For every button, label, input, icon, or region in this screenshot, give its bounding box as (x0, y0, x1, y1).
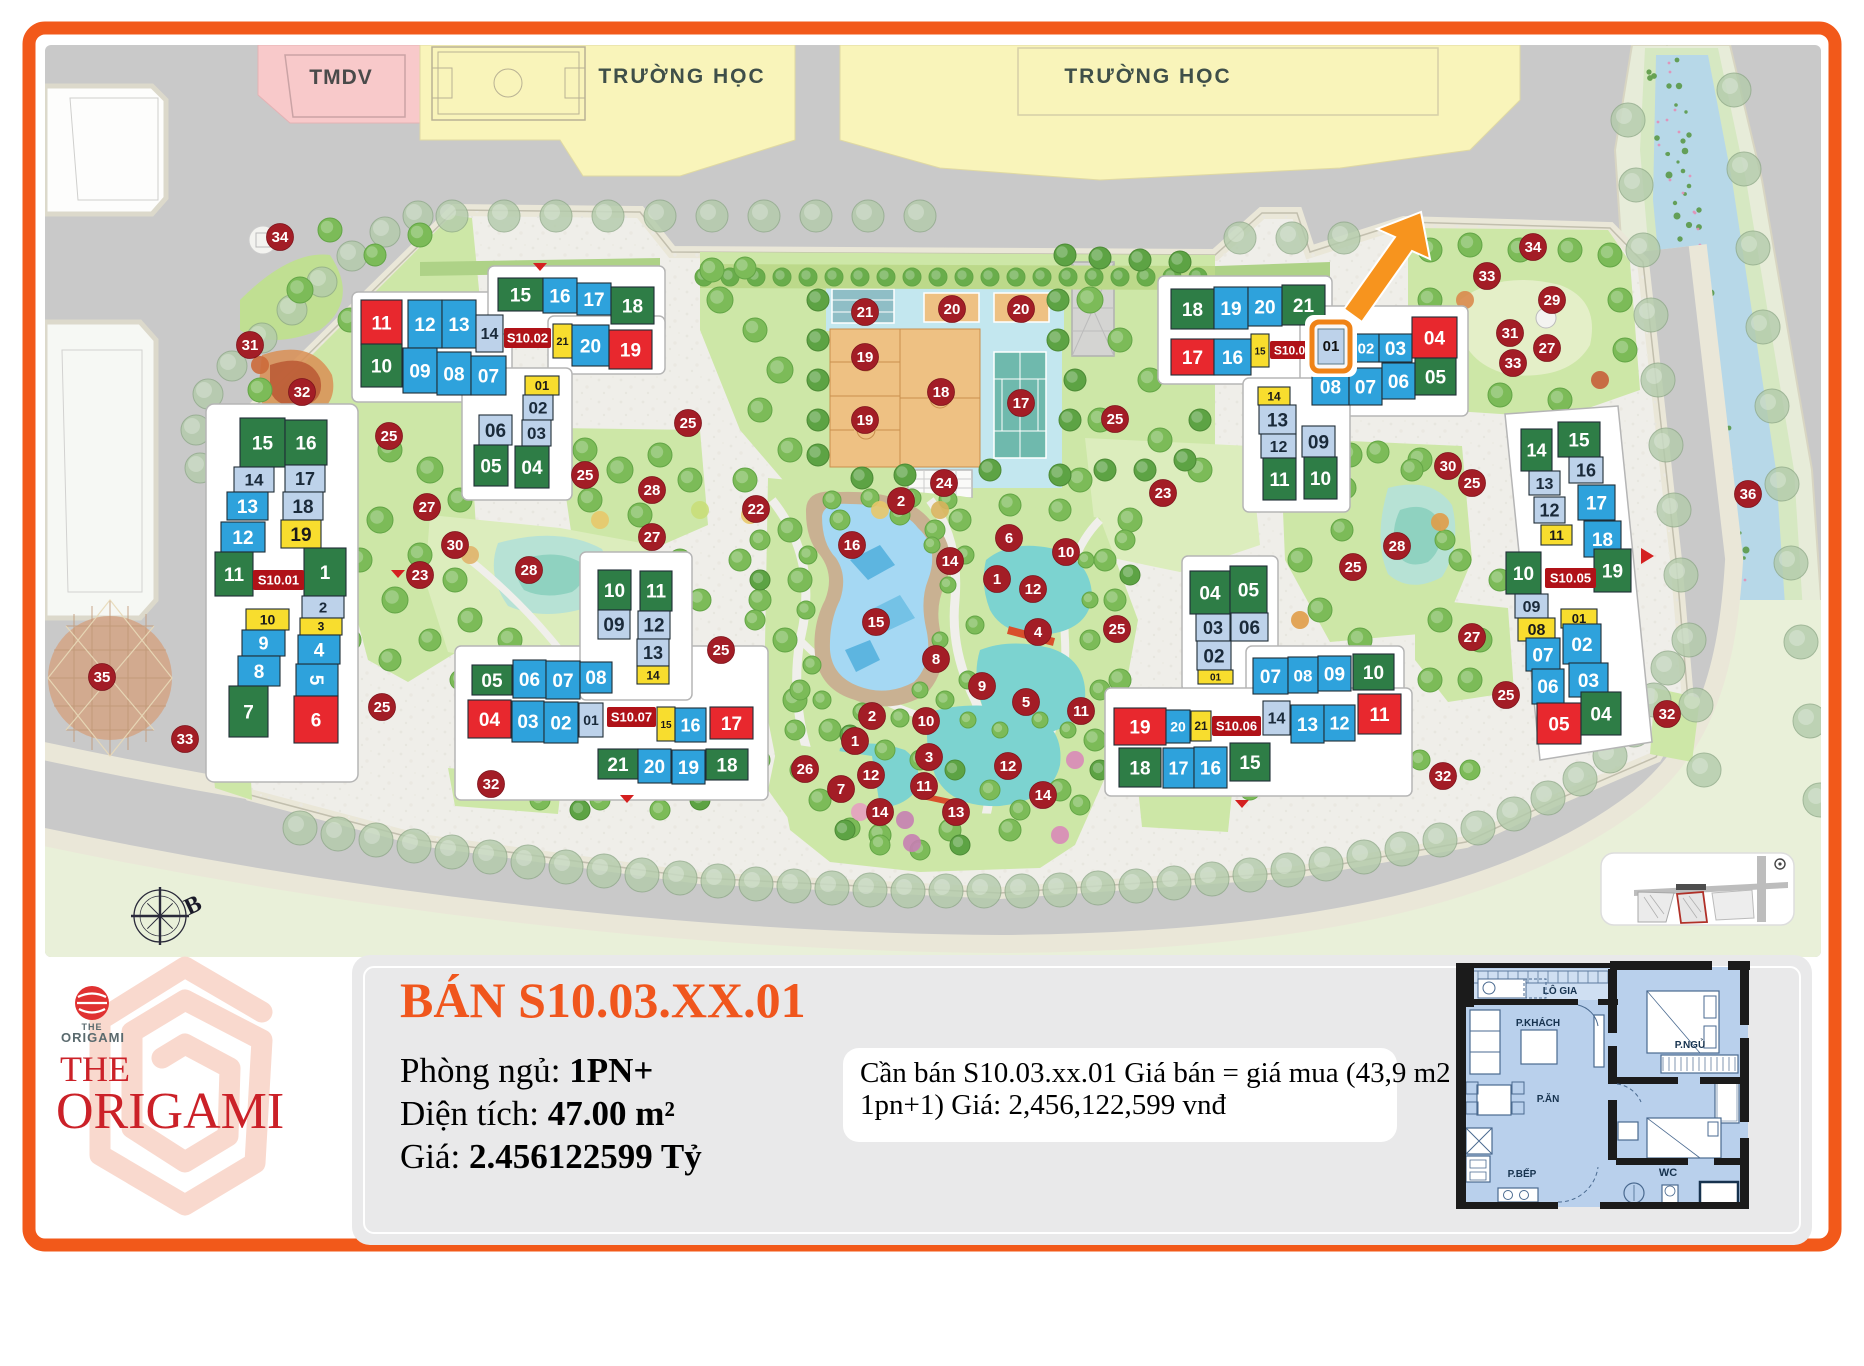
svg-text:11: 11 (1549, 527, 1564, 543)
svg-text:20: 20 (580, 336, 601, 357)
svg-text:17: 17 (295, 469, 315, 489)
svg-text:06: 06 (519, 670, 540, 691)
svg-text:15: 15 (660, 720, 672, 731)
svg-text:S10.06: S10.06 (1216, 719, 1257, 734)
svg-text:19: 19 (857, 349, 874, 366)
svg-text:06: 06 (485, 421, 506, 442)
svg-text:03: 03 (517, 712, 538, 733)
svg-text:26: 26 (797, 761, 814, 778)
svg-text:12: 12 (1329, 714, 1349, 734)
svg-text:16: 16 (844, 537, 861, 554)
svg-text:27: 27 (419, 499, 436, 516)
svg-text:16: 16 (1222, 348, 1243, 369)
svg-text:06: 06 (1239, 618, 1260, 639)
svg-text:BÁN S10.03.XX.01: BÁN S10.03.XX.01 (400, 972, 806, 1028)
svg-text:19: 19 (1220, 299, 1241, 320)
svg-text:16: 16 (549, 286, 570, 307)
svg-text:02: 02 (1358, 340, 1375, 357)
svg-text:31: 31 (1502, 325, 1519, 342)
svg-text:20: 20 (1170, 719, 1186, 735)
svg-text:6: 6 (1005, 530, 1013, 547)
svg-text:28: 28 (644, 482, 661, 499)
svg-text:08: 08 (443, 364, 464, 385)
svg-text:32: 32 (483, 776, 500, 793)
svg-text:10: 10 (918, 713, 935, 730)
svg-text:4: 4 (1034, 624, 1043, 641)
svg-text:WC: WC (1659, 1167, 1677, 1179)
svg-text:03: 03 (527, 424, 546, 443)
svg-text:35: 35 (94, 669, 111, 686)
svg-text:15: 15 (510, 285, 532, 306)
svg-text:11: 11 (1073, 703, 1089, 720)
svg-text:8: 8 (254, 662, 265, 683)
svg-text:17: 17 (721, 714, 742, 735)
svg-text:01: 01 (583, 712, 599, 728)
svg-text:11: 11 (646, 582, 667, 603)
svg-text:07: 07 (1355, 377, 1376, 398)
svg-text:21: 21 (556, 336, 568, 348)
svg-text:08: 08 (1320, 377, 1341, 398)
svg-text:12: 12 (863, 767, 880, 784)
svg-text:18: 18 (1182, 300, 1203, 321)
svg-text:17: 17 (1586, 493, 1607, 514)
svg-text:Diện tích: 47.00 m²: Diện tích: 47.00 m² (400, 1094, 675, 1133)
svg-text:02: 02 (529, 399, 548, 418)
svg-text:S10.02: S10.02 (507, 331, 548, 346)
svg-text:10: 10 (604, 581, 625, 602)
svg-text:13: 13 (948, 804, 965, 821)
svg-text:1: 1 (993, 571, 1001, 588)
svg-text:11: 11 (1369, 705, 1390, 726)
svg-text:15: 15 (1254, 346, 1266, 357)
svg-text:03: 03 (1578, 671, 1599, 692)
svg-text:12: 12 (1025, 581, 1042, 598)
svg-text:01: 01 (1323, 338, 1340, 355)
svg-text:29: 29 (1544, 292, 1561, 309)
svg-text:32: 32 (294, 384, 311, 401)
svg-text:04: 04 (1424, 328, 1446, 349)
svg-text:04: 04 (1590, 704, 1612, 725)
svg-text:13: 13 (448, 315, 469, 336)
svg-text:P.NGỦ: P.NGỦ (1675, 1038, 1705, 1051)
svg-text:20: 20 (644, 757, 665, 778)
svg-text:02: 02 (1571, 635, 1592, 656)
svg-text:05: 05 (481, 671, 503, 692)
svg-text:1: 1 (851, 733, 859, 750)
svg-text:8: 8 (932, 651, 940, 668)
svg-text:7: 7 (837, 781, 845, 798)
svg-text:14: 14 (942, 553, 959, 570)
svg-text:27: 27 (644, 529, 661, 546)
svg-text:25: 25 (1498, 687, 1515, 704)
svg-text:12: 12 (1270, 439, 1288, 456)
svg-text:18: 18 (716, 755, 737, 776)
svg-text:03: 03 (1203, 618, 1223, 638)
svg-text:11: 11 (916, 778, 932, 795)
svg-text:11: 11 (224, 565, 245, 586)
svg-text:36: 36 (1740, 486, 1757, 503)
svg-text:1pn+1) Giá: 2,456,122,599 vnđ: 1pn+1) Giá: 2,456,122,599 vnđ (860, 1089, 1226, 1121)
svg-text:15: 15 (1568, 430, 1590, 451)
svg-text:P.KHÁCH: P.KHÁCH (1516, 1016, 1560, 1029)
svg-text:12: 12 (1000, 758, 1017, 775)
svg-text:14: 14 (245, 471, 264, 490)
svg-text:30: 30 (447, 537, 464, 554)
svg-text:10: 10 (260, 612, 276, 628)
svg-text:22: 22 (748, 501, 765, 518)
svg-text:08: 08 (585, 668, 606, 689)
svg-text:10: 10 (1513, 564, 1534, 585)
svg-text:28: 28 (1389, 538, 1406, 555)
svg-text:19: 19 (1129, 717, 1150, 738)
svg-text:01: 01 (1210, 673, 1222, 684)
svg-text:33: 33 (177, 731, 194, 748)
svg-text:Giá: 2.456122599 Tỷ: Giá: 2.456122599 Tỷ (400, 1137, 702, 1176)
svg-text:15: 15 (868, 614, 885, 631)
svg-text:04: 04 (1199, 583, 1221, 604)
svg-text:2: 2 (897, 493, 905, 510)
svg-text:14: 14 (1035, 787, 1052, 804)
svg-text:9: 9 (258, 633, 268, 653)
svg-text:07: 07 (552, 671, 573, 692)
svg-text:TRƯỜNG HỌC: TRƯỜNG HỌC (598, 64, 765, 88)
svg-text:14: 14 (1268, 711, 1286, 728)
svg-text:25: 25 (1107, 411, 1124, 428)
svg-text:06: 06 (1537, 677, 1558, 698)
svg-text:03: 03 (1385, 339, 1406, 360)
svg-text:19: 19 (620, 340, 641, 361)
svg-text:21: 21 (857, 304, 874, 321)
svg-text:20: 20 (1013, 301, 1030, 318)
svg-text:25: 25 (1345, 559, 1362, 576)
svg-text:23: 23 (1155, 485, 1172, 502)
svg-text:17: 17 (1013, 395, 1030, 412)
svg-text:4: 4 (314, 640, 325, 661)
svg-text:09: 09 (603, 615, 624, 636)
svg-text:S10.05: S10.05 (1550, 571, 1591, 586)
svg-text:14: 14 (872, 804, 889, 821)
svg-text:10: 10 (1363, 663, 1384, 684)
svg-text:S10.0: S10.0 (1274, 343, 1306, 357)
svg-text:19: 19 (857, 412, 874, 429)
svg-text:25: 25 (680, 415, 697, 432)
svg-text:10: 10 (1310, 469, 1331, 490)
svg-text:18: 18 (1592, 530, 1613, 551)
svg-text:13: 13 (1536, 476, 1554, 493)
svg-text:TMDV: TMDV (309, 66, 373, 89)
svg-text:ORIGAMI: ORIGAMI (61, 1030, 125, 1045)
svg-text:21: 21 (607, 755, 629, 776)
svg-text:16: 16 (1576, 460, 1596, 480)
svg-text:08: 08 (1294, 666, 1313, 685)
svg-text:11: 11 (371, 313, 392, 334)
svg-text:10: 10 (1058, 544, 1075, 561)
svg-text:08: 08 (1528, 622, 1546, 639)
svg-text:25: 25 (1109, 621, 1126, 638)
svg-text:30: 30 (1440, 458, 1457, 475)
svg-text:18: 18 (1129, 758, 1150, 779)
svg-text:13: 13 (237, 497, 258, 518)
svg-text:6: 6 (311, 710, 322, 731)
svg-text:23: 23 (412, 567, 429, 584)
svg-text:13: 13 (643, 643, 663, 663)
svg-text:04: 04 (479, 710, 501, 731)
svg-text:2: 2 (319, 599, 327, 616)
svg-text:25: 25 (381, 428, 398, 445)
svg-text:18: 18 (622, 296, 643, 317)
svg-text:24: 24 (936, 475, 953, 492)
svg-text:P.BẾP: P.BẾP (1508, 1167, 1537, 1180)
svg-text:11: 11 (1269, 470, 1290, 491)
svg-text:33: 33 (1479, 268, 1496, 285)
svg-text:21: 21 (1293, 296, 1315, 317)
svg-text:13: 13 (1297, 715, 1318, 736)
svg-text:19: 19 (290, 525, 311, 546)
svg-text:05: 05 (1238, 580, 1260, 601)
svg-text:25: 25 (1464, 475, 1481, 492)
svg-text:27: 27 (1464, 629, 1481, 646)
svg-text:31: 31 (242, 337, 259, 354)
svg-text:Cần bán S10.03.xx.01 Giá bán =: Cần bán S10.03.xx.01 Giá bán = giá mua (… (860, 1057, 1451, 1089)
svg-text:32: 32 (1435, 768, 1452, 785)
svg-text:16: 16 (295, 433, 316, 454)
svg-text:19: 19 (1602, 561, 1623, 582)
svg-text:34: 34 (272, 229, 289, 246)
svg-text:05: 05 (480, 456, 502, 477)
svg-text:25: 25 (713, 642, 730, 659)
svg-text:5: 5 (305, 675, 326, 686)
svg-text:02: 02 (550, 713, 571, 734)
svg-text:12: 12 (414, 315, 435, 336)
svg-text:20: 20 (1254, 297, 1275, 318)
svg-text:9: 9 (978, 678, 986, 695)
svg-text:16: 16 (680, 716, 700, 736)
svg-text:S10.01: S10.01 (258, 573, 299, 588)
svg-text:16: 16 (1200, 758, 1221, 779)
svg-text:34: 34 (1525, 239, 1542, 256)
svg-text:18: 18 (292, 497, 313, 518)
svg-text:LÔ GIA: LÔ GIA (1543, 984, 1577, 997)
svg-text:27: 27 (1539, 340, 1556, 357)
svg-text:12: 12 (643, 616, 664, 637)
svg-text:P.ĂN: P.ĂN (1537, 1092, 1560, 1105)
svg-text:TRƯỜNG HỌC: TRƯỜNG HỌC (1064, 64, 1231, 88)
svg-text:12: 12 (1539, 500, 1559, 520)
svg-text:32: 32 (1659, 706, 1676, 723)
svg-text:Phòng ngủ: 1PN+: Phòng ngủ: 1PN+ (400, 1051, 653, 1090)
svg-text:10: 10 (371, 356, 392, 377)
svg-text:05: 05 (1548, 714, 1570, 735)
svg-text:14: 14 (1526, 441, 1546, 461)
svg-text:25: 25 (577, 467, 594, 484)
svg-text:13: 13 (1267, 410, 1288, 431)
svg-text:05: 05 (1425, 367, 1447, 388)
svg-text:06: 06 (1388, 372, 1409, 393)
svg-text:15: 15 (252, 433, 274, 454)
svg-text:14: 14 (481, 326, 499, 343)
svg-text:28: 28 (521, 562, 538, 579)
svg-text:25: 25 (374, 699, 391, 716)
svg-text:17: 17 (1182, 348, 1203, 369)
svg-text:14: 14 (1267, 389, 1281, 403)
svg-text:12: 12 (232, 528, 253, 549)
svg-text:09: 09 (1308, 432, 1329, 453)
svg-text:01: 01 (535, 378, 549, 393)
svg-text:7: 7 (243, 702, 254, 723)
svg-text:21: 21 (1194, 719, 1208, 733)
svg-text:09: 09 (1324, 664, 1345, 685)
svg-text:20: 20 (944, 301, 961, 318)
svg-text:17: 17 (1168, 759, 1188, 779)
svg-text:15: 15 (1239, 753, 1261, 774)
svg-text:ORIGAMI: ORIGAMI (56, 1083, 284, 1140)
svg-text:04: 04 (521, 458, 543, 479)
svg-text:09: 09 (409, 361, 430, 382)
svg-text:18: 18 (933, 384, 950, 401)
svg-text:17: 17 (583, 290, 604, 311)
svg-text:2: 2 (868, 708, 876, 725)
svg-text:3: 3 (318, 620, 325, 634)
svg-text:5: 5 (1022, 694, 1030, 711)
svg-text:3: 3 (925, 749, 933, 766)
svg-text:09: 09 (1523, 599, 1541, 616)
svg-text:07: 07 (1532, 645, 1553, 666)
svg-text:07: 07 (478, 366, 499, 387)
svg-text:19: 19 (678, 758, 699, 779)
svg-text:14: 14 (646, 668, 660, 682)
svg-text:S10.07: S10.07 (611, 710, 652, 725)
svg-text:07: 07 (1260, 667, 1281, 688)
svg-text:33: 33 (1505, 355, 1522, 372)
svg-text:1: 1 (320, 563, 331, 584)
svg-text:02: 02 (1203, 646, 1224, 667)
